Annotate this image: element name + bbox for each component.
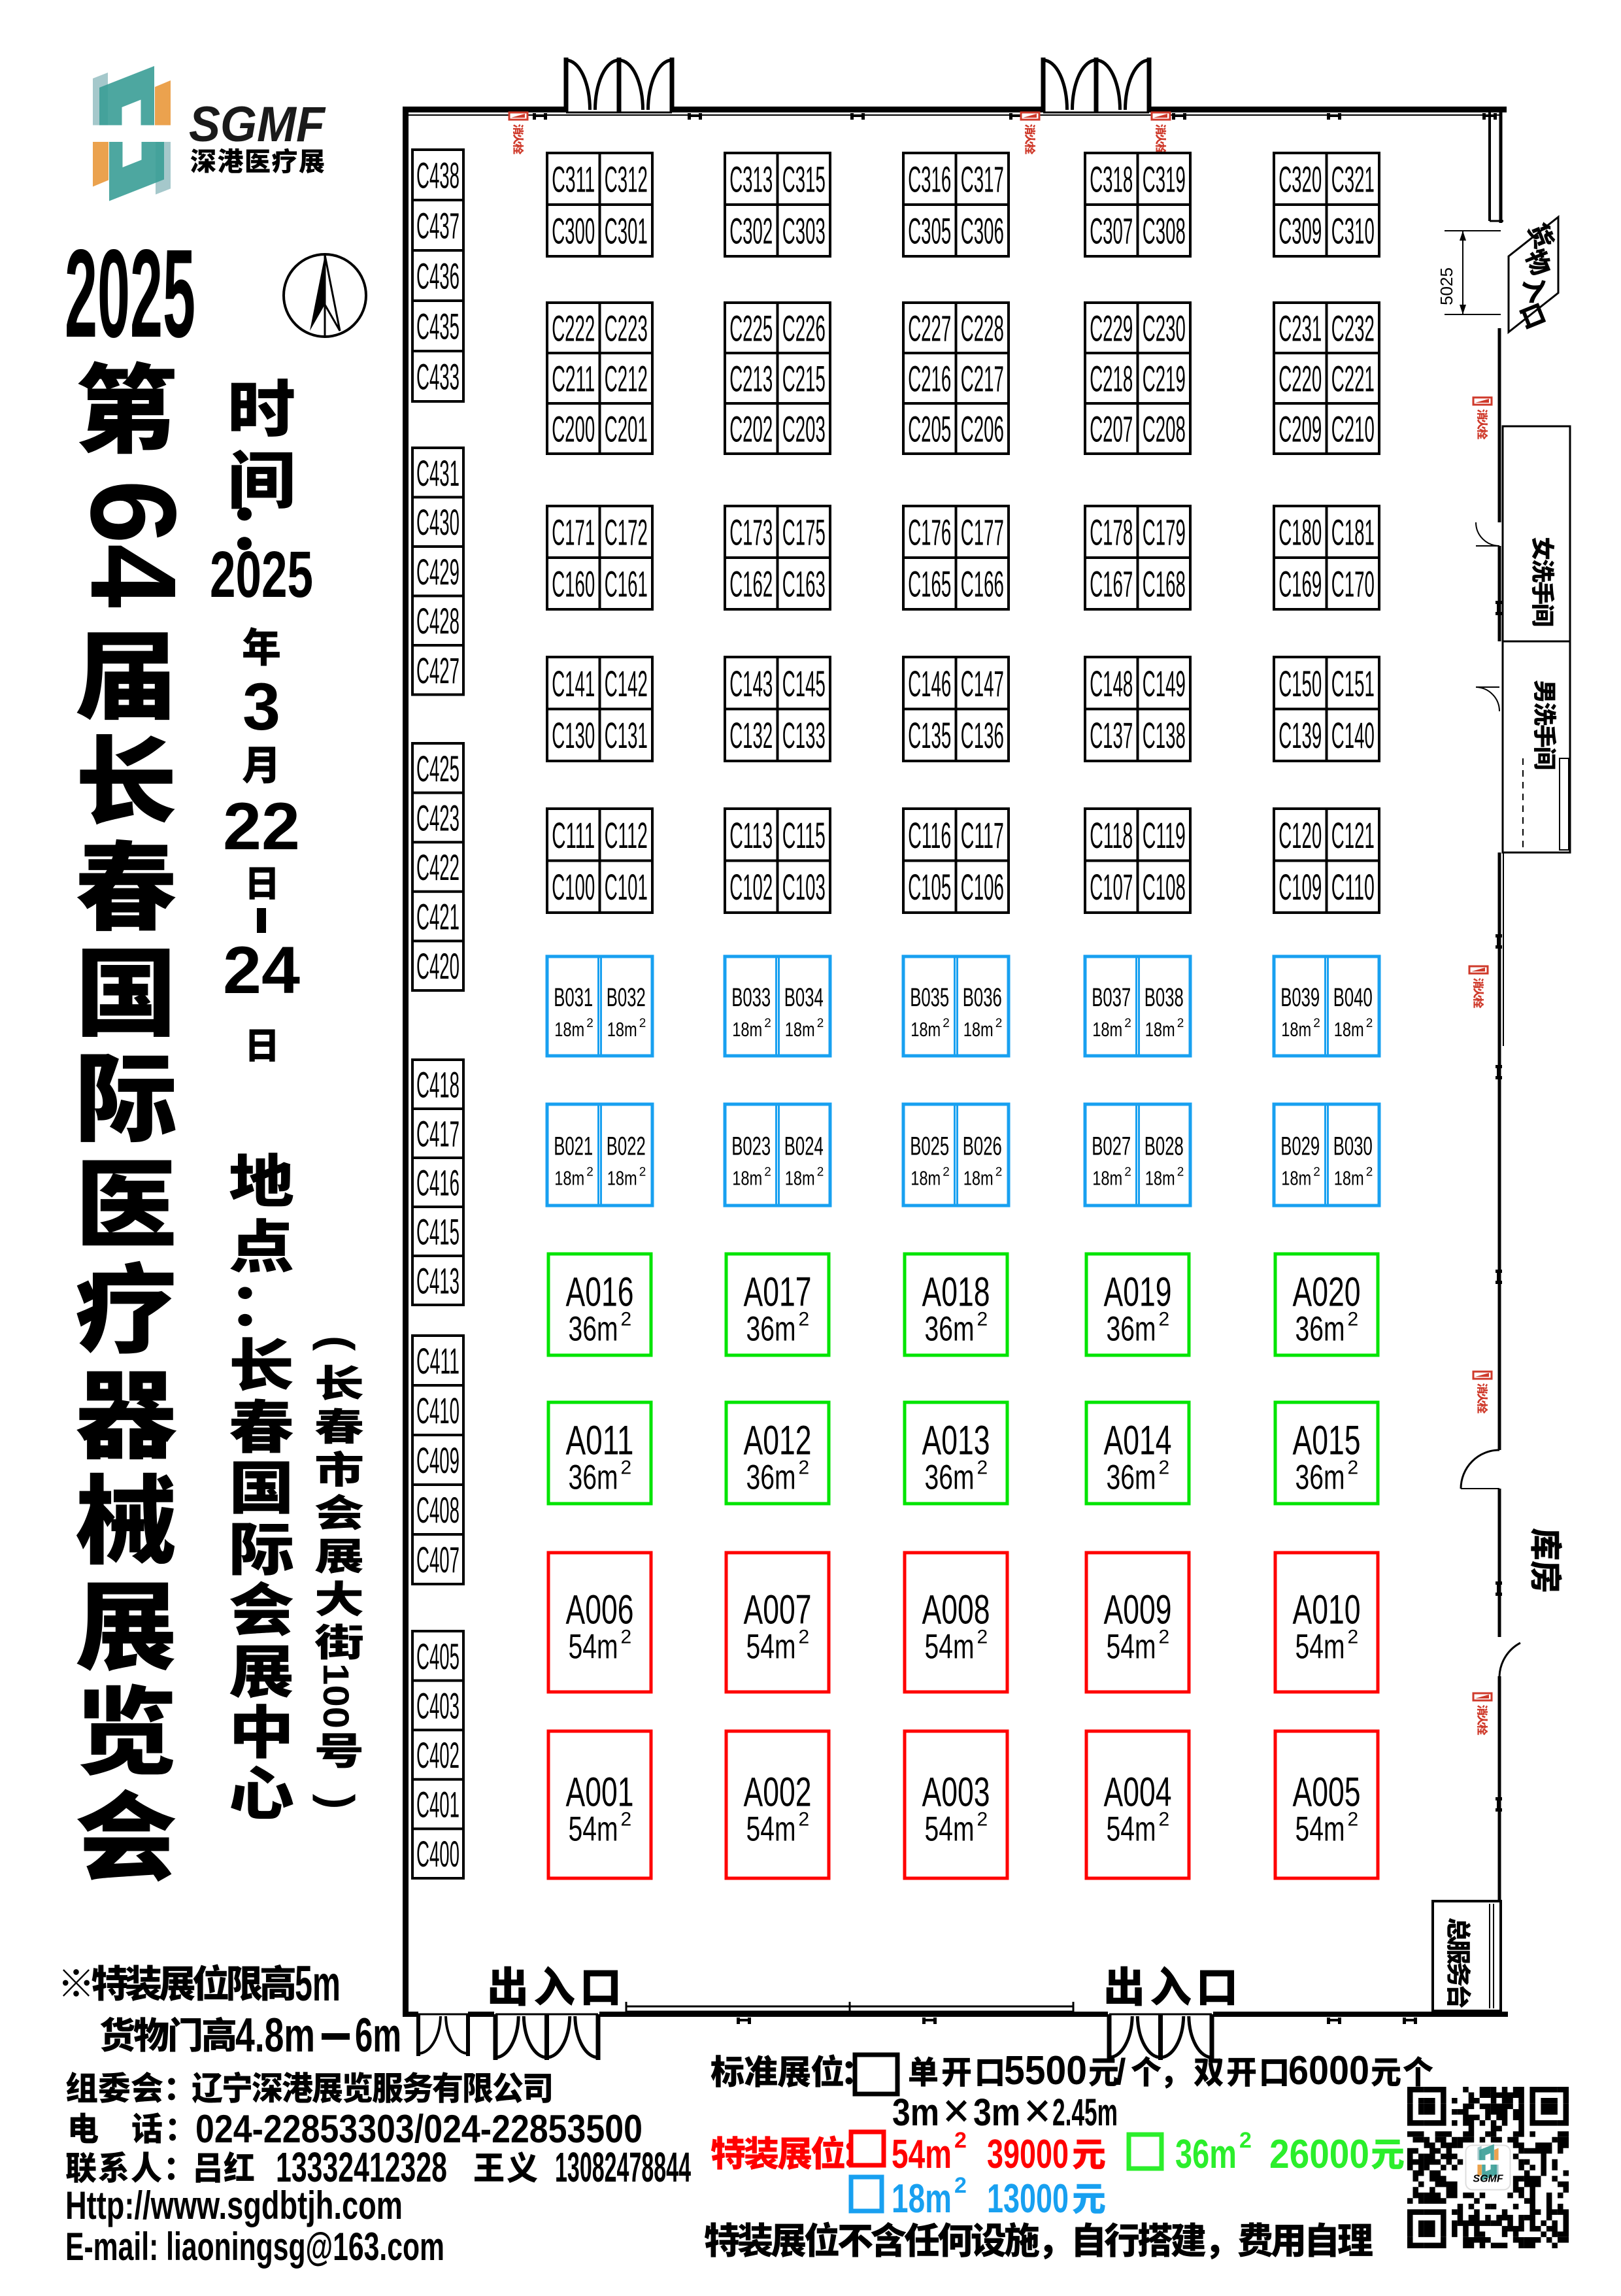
svg-text:C403: C403: [416, 1685, 460, 1726]
svg-text:C308: C308: [1143, 211, 1186, 252]
svg-text:2: 2: [799, 1809, 810, 1831]
svg-text:36m: 36m: [1107, 1459, 1156, 1497]
svg-text:C143: C143: [729, 663, 773, 704]
svg-text:54m: 54m: [1107, 1810, 1156, 1849]
svg-text:2: 2: [639, 1166, 646, 1179]
svg-text:100: 100: [316, 1663, 357, 1729]
svg-text:C141: C141: [552, 663, 595, 704]
svg-text:18m: 18m: [1092, 1167, 1122, 1190]
svg-text:54m: 54m: [925, 1810, 975, 1849]
svg-text:C317: C317: [961, 159, 1004, 200]
svg-text:2: 2: [817, 1166, 824, 1179]
svg-text:C231: C231: [1278, 308, 1322, 349]
svg-text:2: 2: [1124, 1166, 1131, 1179]
svg-text:C227: C227: [908, 308, 951, 349]
svg-text:2: 2: [764, 1166, 771, 1179]
svg-text:B027: B027: [1092, 1132, 1131, 1161]
svg-text:C148: C148: [1090, 663, 1133, 704]
svg-text:C116: C116: [908, 815, 951, 856]
svg-text:C408: C408: [416, 1489, 460, 1530]
svg-text:C179: C179: [1143, 512, 1186, 553]
svg-text:/: /: [1116, 2051, 1126, 2092]
svg-text:C162: C162: [729, 564, 773, 605]
svg-text:C120: C120: [1278, 815, 1322, 856]
svg-text:C411: C411: [416, 1340, 460, 1381]
svg-text:2: 2: [764, 1017, 771, 1030]
svg-text:18m: 18m: [892, 2176, 952, 2221]
svg-text:2: 2: [977, 1809, 988, 1831]
svg-text:C110: C110: [1331, 866, 1375, 907]
svg-text:C421: C421: [416, 896, 460, 937]
svg-text:C101: C101: [605, 866, 648, 907]
svg-text:B037: B037: [1092, 983, 1131, 1012]
svg-text:C100: C100: [552, 866, 595, 907]
svg-text:C147: C147: [961, 663, 1004, 704]
svg-text:C216: C216: [908, 358, 951, 399]
svg-text:B026: B026: [963, 1132, 1002, 1161]
svg-text:54m: 54m: [569, 1628, 618, 1666]
svg-text:C209: C209: [1278, 409, 1322, 450]
svg-text:C228: C228: [961, 308, 1004, 349]
svg-text:C222: C222: [552, 308, 595, 349]
svg-text:B022: B022: [607, 1132, 646, 1161]
svg-text:C417: C417: [416, 1113, 460, 1155]
svg-text:B040: B040: [1333, 983, 1373, 1012]
svg-text:C160: C160: [552, 564, 595, 605]
svg-text:C219: C219: [1143, 358, 1186, 399]
svg-text:C200: C200: [552, 409, 595, 450]
svg-text:C145: C145: [782, 663, 826, 704]
svg-text:C402: C402: [416, 1734, 460, 1776]
svg-text:C438: C438: [416, 155, 460, 196]
svg-text:B038: B038: [1145, 983, 1184, 1012]
svg-text:C105: C105: [908, 866, 951, 907]
svg-text:B021: B021: [554, 1132, 593, 1161]
svg-text:C103: C103: [782, 866, 826, 907]
svg-text:C217: C217: [961, 358, 1004, 399]
svg-text:13082478844: 13082478844: [555, 2144, 691, 2191]
svg-text:C175: C175: [782, 512, 826, 553]
svg-text:C400: C400: [416, 1833, 460, 1874]
svg-text:C106: C106: [961, 866, 1004, 907]
svg-text:C307: C307: [1090, 211, 1133, 252]
svg-text:2: 2: [586, 1017, 593, 1030]
svg-text:2: 2: [799, 1457, 810, 1479]
svg-text:B033: B033: [731, 983, 771, 1012]
svg-text:C413: C413: [416, 1260, 460, 1302]
svg-text:B030: B030: [1333, 1132, 1373, 1161]
svg-text:2: 2: [1348, 1457, 1359, 1479]
svg-text:C431: C431: [416, 452, 460, 494]
svg-text:2: 2: [621, 1809, 632, 1831]
svg-text:C102: C102: [729, 866, 773, 907]
svg-text:C315: C315: [782, 159, 826, 200]
svg-text:C168: C168: [1143, 564, 1186, 605]
svg-text:E-mail: liaoningsg@163.com: E-mail: liaoningsg@163.com: [65, 2225, 444, 2269]
svg-text:54m: 54m: [925, 1628, 975, 1666]
svg-text:18m: 18m: [607, 1167, 637, 1190]
svg-text:B035: B035: [910, 983, 949, 1012]
svg-text:18m: 18m: [732, 1018, 762, 1041]
svg-text:C165: C165: [908, 564, 951, 605]
svg-text:C427: C427: [416, 650, 460, 691]
svg-text:C429: C429: [416, 551, 460, 592]
svg-text:B034: B034: [784, 983, 824, 1012]
svg-text:C151: C151: [1331, 663, 1375, 704]
svg-text:2: 2: [943, 1017, 950, 1030]
svg-text:C213: C213: [729, 358, 773, 399]
svg-text:54m: 54m: [1295, 1810, 1345, 1849]
svg-text:C206: C206: [961, 409, 1004, 450]
svg-text:36m: 36m: [1295, 1459, 1345, 1497]
svg-text:C319: C319: [1143, 159, 1186, 200]
svg-text:18m: 18m: [963, 1018, 994, 1041]
svg-text:C178: C178: [1090, 512, 1133, 553]
svg-text:C218: C218: [1090, 358, 1133, 399]
svg-text:B032: B032: [607, 983, 646, 1012]
svg-text:): ): [312, 1794, 363, 1809]
svg-text:4.8m: 4.8m: [235, 2009, 315, 2062]
svg-text:C121: C121: [1331, 815, 1375, 856]
svg-text:C312: C312: [605, 159, 648, 200]
svg-text:C423: C423: [416, 797, 460, 838]
svg-text:C140: C140: [1331, 715, 1375, 756]
svg-text:36m: 36m: [746, 1459, 796, 1497]
svg-text:C163: C163: [782, 564, 826, 605]
svg-text:2: 2: [639, 1017, 646, 1030]
svg-text:13000: 13000: [987, 2176, 1069, 2221]
svg-text:C176: C176: [908, 512, 951, 553]
svg-text:C109: C109: [1278, 866, 1322, 907]
svg-text:2: 2: [1159, 1809, 1170, 1831]
svg-text:36m: 36m: [1107, 1310, 1156, 1349]
svg-text:C428: C428: [416, 600, 460, 641]
svg-text:C320: C320: [1278, 159, 1322, 200]
svg-text:C171: C171: [552, 512, 595, 553]
svg-text:C161: C161: [605, 564, 648, 605]
svg-text:18m: 18m: [1145, 1018, 1175, 1041]
svg-text:2: 2: [995, 1017, 1003, 1030]
svg-text:2: 2: [1366, 1166, 1373, 1179]
svg-text:2: 2: [1177, 1166, 1184, 1179]
svg-text:SGMF: SGMF: [1473, 2174, 1503, 2185]
svg-text:B023: B023: [731, 1132, 771, 1161]
svg-text:C321: C321: [1331, 159, 1375, 200]
svg-text:C172: C172: [605, 512, 648, 553]
svg-text:2: 2: [954, 2173, 967, 2198]
svg-text:5025: 5025: [1437, 267, 1456, 305]
svg-text:C215: C215: [782, 358, 826, 399]
svg-text:C310: C310: [1331, 211, 1375, 252]
svg-text:54m: 54m: [746, 1628, 796, 1666]
svg-text:2: 2: [943, 1166, 950, 1179]
svg-text:Http://www.sgdbtjh.com: Http://www.sgdbtjh.com: [65, 2184, 403, 2227]
svg-text:2: 2: [1177, 1017, 1184, 1030]
svg-text:2: 2: [1159, 1309, 1170, 1330]
svg-text:C225: C225: [729, 308, 773, 349]
svg-text:C115: C115: [782, 815, 826, 856]
svg-text:(: (: [312, 1336, 363, 1351]
svg-text:2: 2: [977, 1309, 988, 1330]
svg-text:C229: C229: [1090, 308, 1133, 349]
svg-text:C416: C416: [416, 1162, 460, 1204]
svg-text:39000: 39000: [987, 2132, 1069, 2177]
svg-text:36m: 36m: [569, 1310, 618, 1349]
svg-text:18m: 18m: [911, 1167, 941, 1190]
svg-text:C170: C170: [1331, 564, 1375, 605]
svg-text:36m: 36m: [746, 1310, 796, 1349]
svg-text:2: 2: [954, 2128, 967, 2153]
svg-text:B031: B031: [554, 983, 593, 1012]
svg-text:C306: C306: [961, 211, 1004, 252]
svg-text:C220: C220: [1278, 358, 1322, 399]
svg-text:2: 2: [1239, 2128, 1252, 2153]
svg-text:C181: C181: [1331, 512, 1375, 553]
svg-text:C113: C113: [729, 815, 773, 856]
svg-text:C202: C202: [729, 409, 773, 450]
svg-text:B024: B024: [784, 1132, 824, 1161]
svg-text:B029: B029: [1280, 1132, 1320, 1161]
svg-text:2: 2: [1348, 1309, 1359, 1330]
svg-text:C437: C437: [416, 205, 460, 246]
svg-text:C108: C108: [1143, 866, 1186, 907]
svg-text:22: 22: [223, 789, 300, 864]
svg-text:2: 2: [1124, 1017, 1131, 1030]
svg-text:54m: 54m: [569, 1810, 618, 1849]
svg-text:C309: C309: [1278, 211, 1322, 252]
svg-text:36m: 36m: [569, 1459, 618, 1497]
svg-text:C302: C302: [729, 211, 773, 252]
svg-text:C212: C212: [605, 358, 648, 399]
svg-text:C303: C303: [782, 211, 826, 252]
svg-text:2: 2: [799, 1627, 810, 1648]
svg-text:C107: C107: [1090, 866, 1133, 907]
svg-text:2025: 2025: [210, 538, 313, 611]
svg-text:18m: 18m: [1092, 1018, 1122, 1041]
svg-text:C139: C139: [1278, 715, 1322, 756]
svg-text:2: 2: [817, 1017, 824, 1030]
svg-text:C409: C409: [416, 1440, 460, 1481]
svg-text:C301: C301: [605, 211, 648, 252]
svg-text:C230: C230: [1143, 308, 1186, 349]
svg-text:C436: C436: [416, 256, 460, 297]
svg-text:C166: C166: [961, 564, 1004, 605]
svg-text:C435: C435: [416, 306, 460, 347]
svg-text:2: 2: [1313, 1166, 1320, 1179]
svg-text:C425: C425: [416, 748, 460, 789]
svg-text:B025: B025: [910, 1132, 949, 1161]
svg-text:54m: 54m: [1295, 1628, 1345, 1666]
svg-text:2: 2: [1366, 1017, 1373, 1030]
svg-text:2: 2: [1313, 1017, 1320, 1030]
svg-text:36m: 36m: [1295, 1310, 1345, 1349]
svg-text:C136: C136: [961, 715, 1004, 756]
svg-text:2: 2: [977, 1627, 988, 1648]
svg-text:18m: 18m: [732, 1167, 762, 1190]
svg-text:2: 2: [977, 1457, 988, 1479]
svg-text:54m: 54m: [892, 2132, 952, 2177]
svg-text:18m: 18m: [607, 1018, 637, 1041]
svg-text:C173: C173: [729, 512, 773, 553]
svg-text:C401: C401: [416, 1784, 460, 1825]
svg-text:C210: C210: [1331, 409, 1375, 450]
svg-text:C138: C138: [1143, 715, 1186, 756]
svg-text:C205: C205: [908, 409, 951, 450]
svg-text:C226: C226: [782, 308, 826, 349]
svg-text:2: 2: [1159, 1457, 1170, 1479]
svg-text:3m: 3m: [973, 2091, 1020, 2134]
svg-text:2: 2: [621, 1627, 632, 1648]
svg-text:C149: C149: [1143, 663, 1186, 704]
svg-text:2: 2: [1348, 1809, 1359, 1831]
svg-text:18m: 18m: [1145, 1167, 1175, 1190]
svg-text:18m: 18m: [1281, 1167, 1311, 1190]
svg-text:18m: 18m: [911, 1018, 941, 1041]
svg-text:6000: 6000: [1288, 2048, 1369, 2093]
svg-text:64: 64: [65, 480, 201, 608]
svg-text:2: 2: [621, 1457, 632, 1479]
svg-text:2: 2: [1159, 1627, 1170, 1648]
svg-text:C180: C180: [1278, 512, 1322, 553]
svg-text:2025: 2025: [65, 223, 195, 363]
svg-text:C137: C137: [1090, 715, 1133, 756]
svg-text:18m: 18m: [963, 1167, 994, 1190]
svg-text:6m: 6m: [355, 2009, 401, 2062]
svg-text:C142: C142: [605, 663, 648, 704]
svg-text:26000: 26000: [1269, 2132, 1369, 2177]
svg-text:C430: C430: [416, 501, 460, 543]
svg-text:18m: 18m: [1334, 1167, 1364, 1190]
svg-text:C167: C167: [1090, 564, 1133, 605]
svg-text:3: 3: [242, 669, 280, 744]
svg-text:2: 2: [586, 1166, 593, 1179]
svg-text:C146: C146: [908, 663, 951, 704]
svg-text:2: 2: [799, 1309, 810, 1330]
svg-text:C407: C407: [416, 1539, 460, 1580]
svg-text:C119: C119: [1143, 815, 1186, 856]
svg-text:B028: B028: [1145, 1132, 1184, 1161]
svg-text:C316: C316: [908, 159, 951, 200]
svg-text:C203: C203: [782, 409, 826, 450]
svg-text:C433: C433: [416, 356, 460, 397]
svg-text:2.45m: 2.45m: [1052, 2091, 1118, 2134]
svg-text:C410: C410: [416, 1390, 460, 1431]
svg-text:C221: C221: [1331, 358, 1375, 399]
svg-text:36m: 36m: [925, 1310, 975, 1349]
svg-text:18m: 18m: [1281, 1018, 1311, 1041]
svg-text:54m: 54m: [1107, 1628, 1156, 1666]
svg-text:18m: 18m: [554, 1018, 584, 1041]
svg-text:C405: C405: [416, 1636, 460, 1677]
svg-text:2: 2: [621, 1309, 632, 1330]
svg-text:18m: 18m: [785, 1018, 815, 1041]
svg-text:2: 2: [1348, 1627, 1359, 1648]
svg-text:C313: C313: [729, 159, 773, 200]
svg-text:18m: 18m: [554, 1167, 584, 1190]
svg-text:C117: C117: [961, 815, 1004, 856]
svg-text:C223: C223: [605, 308, 648, 349]
svg-text:36m: 36m: [1175, 2132, 1237, 2177]
svg-text:SGMF: SGMF: [189, 97, 326, 152]
svg-text:C111: C111: [552, 815, 595, 856]
svg-text:C177: C177: [961, 512, 1004, 553]
svg-text:54m: 54m: [746, 1810, 796, 1849]
svg-text:C169: C169: [1278, 564, 1322, 605]
svg-text:B036: B036: [963, 983, 1002, 1012]
svg-text:C420: C420: [416, 945, 460, 987]
svg-text:C135: C135: [908, 715, 951, 756]
svg-text:C300: C300: [552, 211, 595, 252]
svg-text:C318: C318: [1090, 159, 1133, 200]
svg-text:36m: 36m: [925, 1459, 975, 1497]
svg-text:24: 24: [223, 933, 300, 1007]
svg-text:18m: 18m: [1334, 1018, 1364, 1041]
svg-text:C211: C211: [552, 358, 595, 399]
svg-text:C131: C131: [605, 715, 648, 756]
svg-text:C132: C132: [729, 715, 773, 756]
svg-text:C305: C305: [908, 211, 951, 252]
svg-text:C418: C418: [416, 1064, 460, 1106]
svg-text:C150: C150: [1278, 663, 1322, 704]
svg-text:C118: C118: [1090, 815, 1133, 856]
svg-text:C201: C201: [605, 409, 648, 450]
svg-text:C311: C311: [552, 159, 595, 200]
svg-text:2: 2: [995, 1166, 1003, 1179]
svg-text:B039: B039: [1280, 983, 1320, 1012]
svg-text:3m: 3m: [892, 2091, 939, 2134]
svg-text:C422: C422: [416, 847, 460, 888]
svg-text:C232: C232: [1331, 308, 1375, 349]
svg-text:C207: C207: [1090, 409, 1133, 450]
svg-text:5500: 5500: [1004, 2048, 1087, 2093]
svg-text:C130: C130: [552, 715, 595, 756]
svg-text:C415: C415: [416, 1211, 460, 1253]
svg-text:18m: 18m: [785, 1167, 815, 1190]
svg-text:5m: 5m: [295, 1956, 341, 2012]
svg-text:C112: C112: [605, 815, 648, 856]
svg-text:C208: C208: [1143, 409, 1186, 450]
svg-text:C133: C133: [782, 715, 826, 756]
